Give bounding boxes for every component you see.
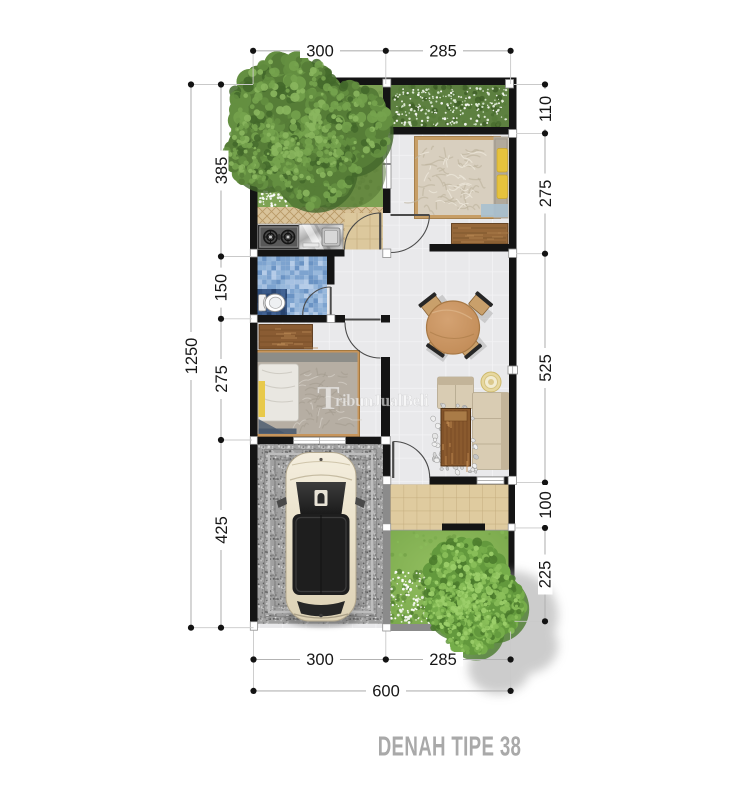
svg-text:ribunJualBeli: ribunJualBeli [335,391,429,410]
svg-text:385: 385 [213,157,231,185]
svg-text:525: 525 [537,354,555,382]
svg-text:425: 425 [213,516,231,544]
svg-text:275: 275 [537,180,555,208]
svg-text:DENAH TIPE 38: DENAH TIPE 38 [378,731,522,761]
svg-text:100: 100 [537,491,555,519]
svg-text:285: 285 [429,651,457,669]
svg-text:150: 150 [213,274,231,302]
svg-text:600: 600 [372,683,400,701]
svg-text:300: 300 [306,651,334,669]
svg-text:285: 285 [429,43,457,61]
svg-text:110: 110 [537,96,555,122]
svg-text:1250: 1250 [183,338,201,375]
svg-text:300: 300 [306,43,334,61]
svg-text:275: 275 [213,365,231,393]
svg-text:225: 225 [536,561,554,589]
